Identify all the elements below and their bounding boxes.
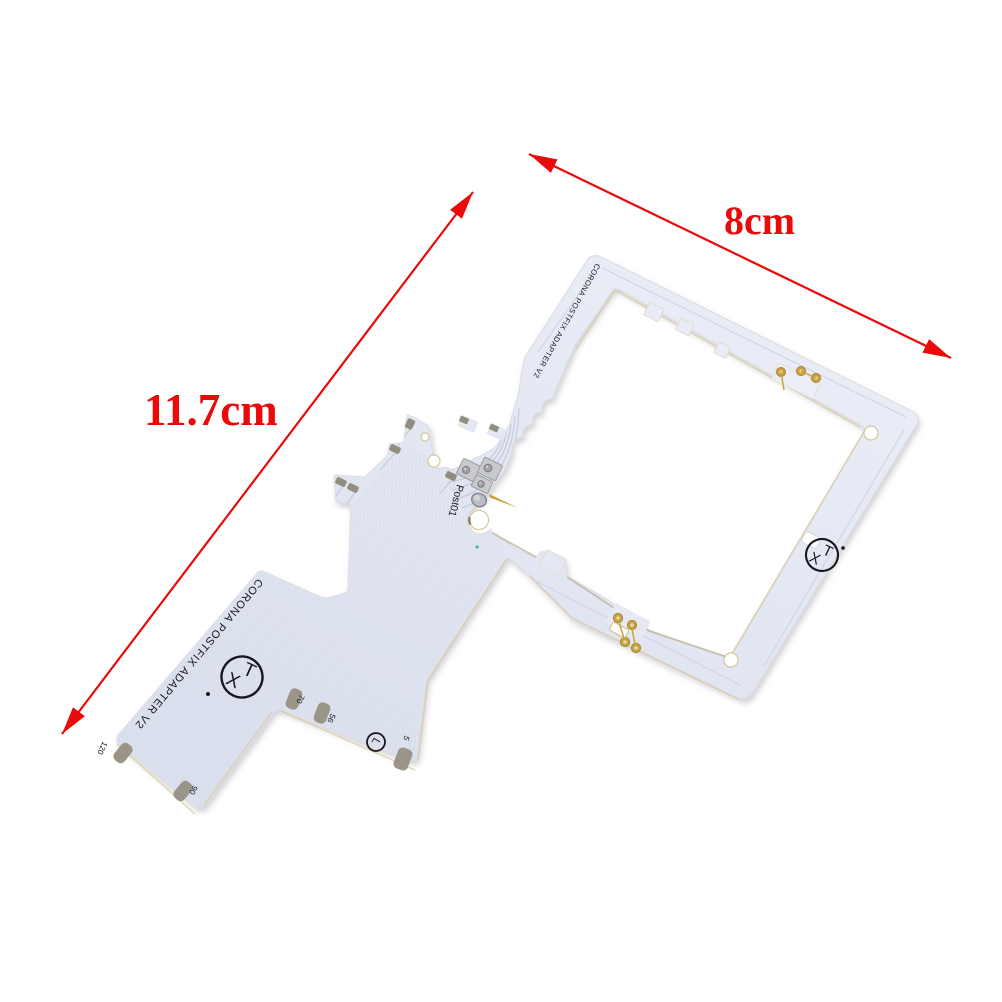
svg-text:11.7cm: 11.7cm (144, 385, 278, 435)
svg-text:8cm: 8cm (724, 198, 795, 243)
